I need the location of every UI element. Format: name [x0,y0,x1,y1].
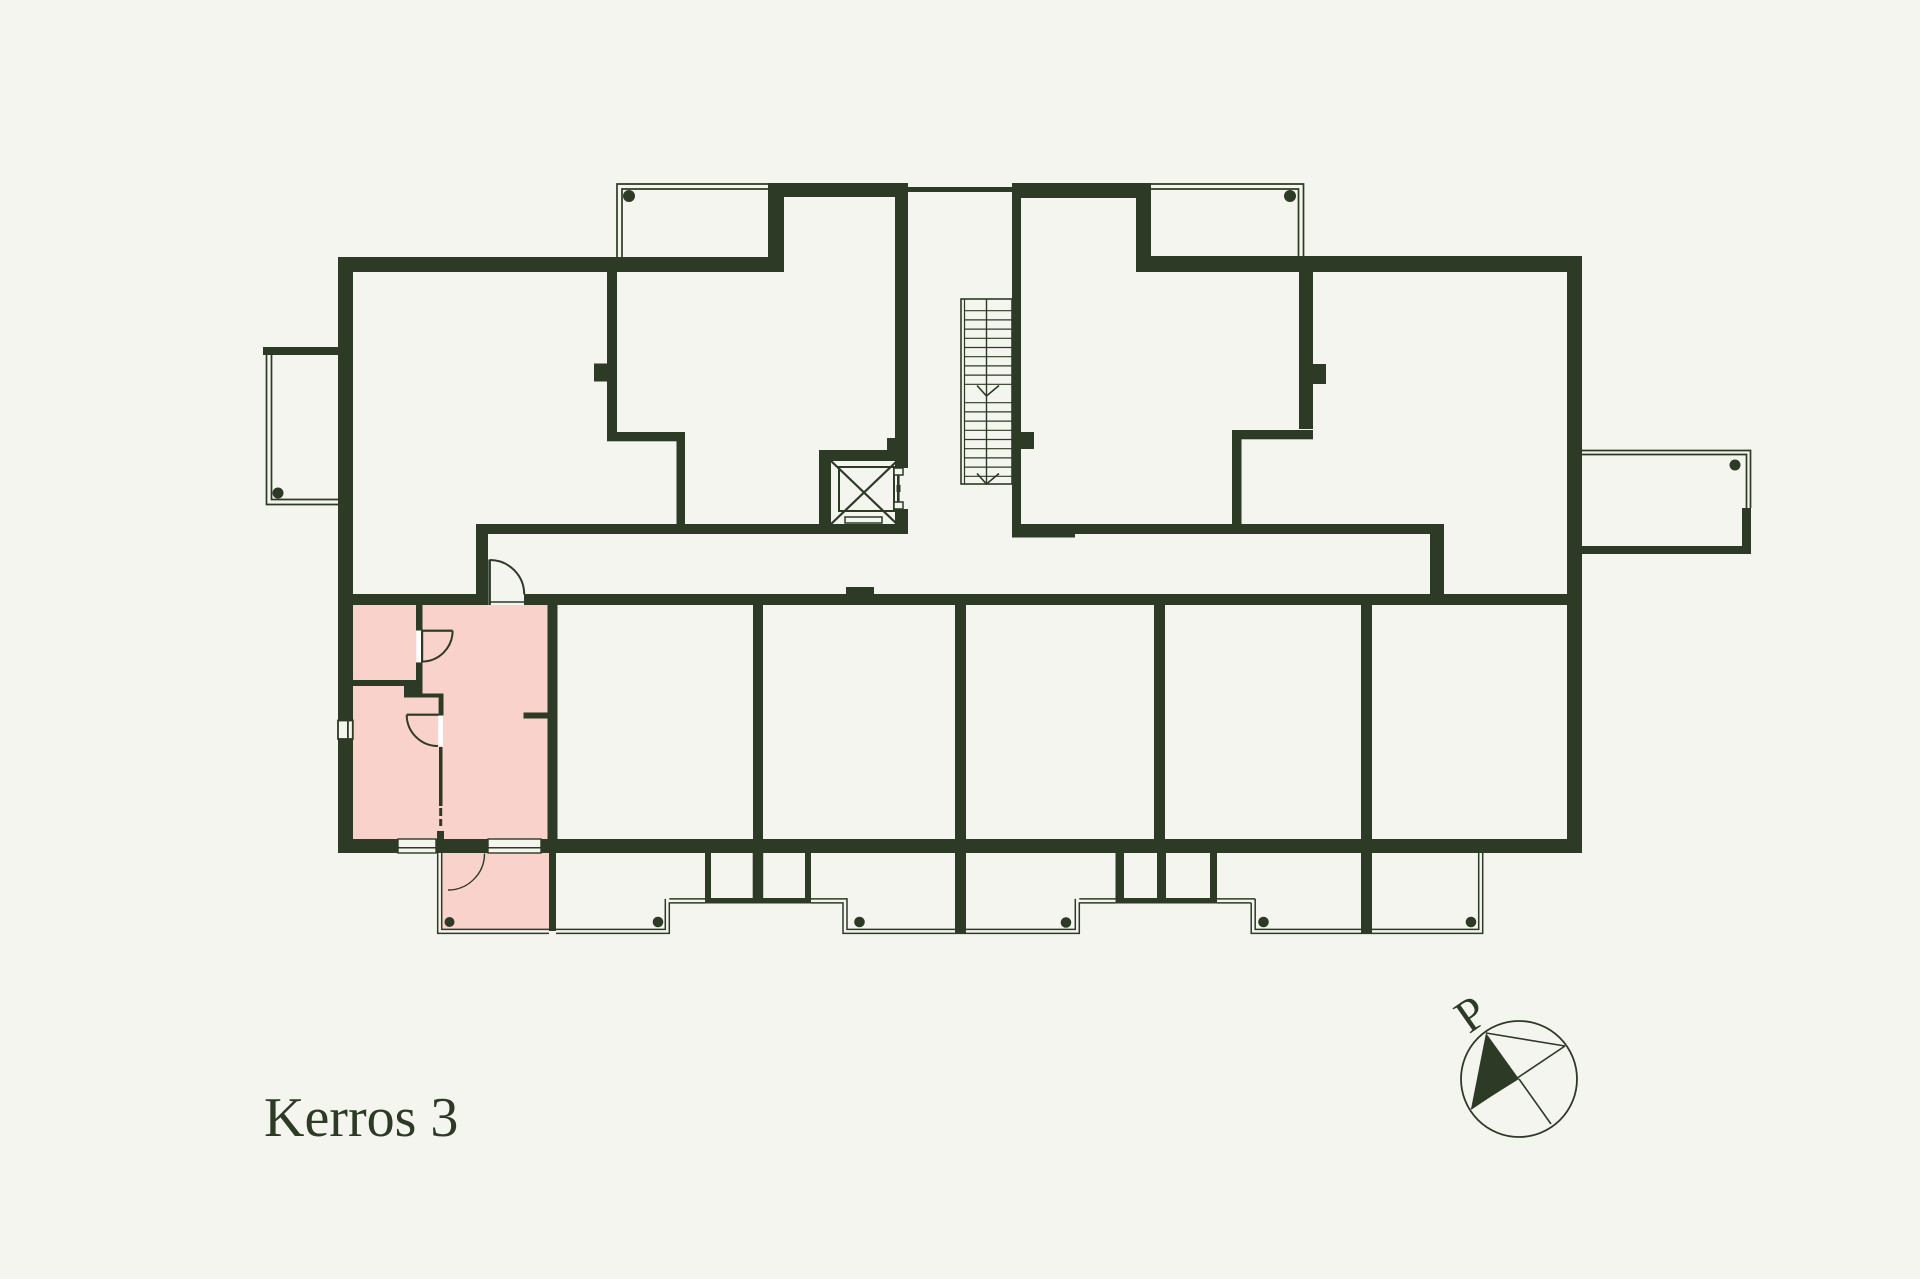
svg-text:Kerros 3: Kerros 3 [264,1087,458,1149]
